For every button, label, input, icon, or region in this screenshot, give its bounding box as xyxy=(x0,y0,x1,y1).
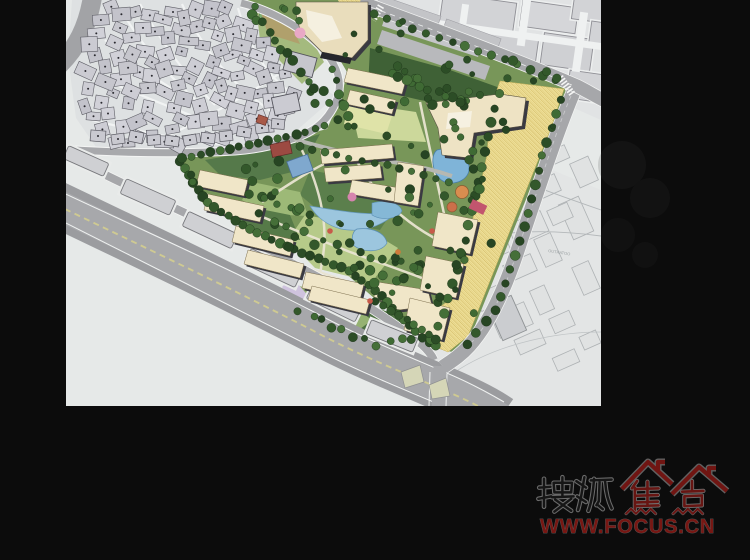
svg-text:WWW.FOCUS.CN: WWW.FOCUS.CN xyxy=(540,516,715,538)
